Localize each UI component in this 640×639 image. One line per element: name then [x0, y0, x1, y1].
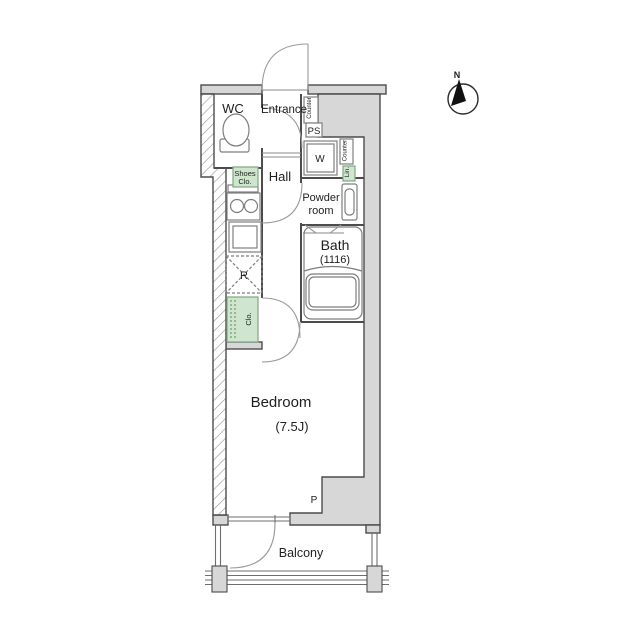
toilet-bowl	[223, 114, 249, 146]
bedroom-label: Bedroom	[251, 394, 312, 411]
pipe-shaft-label: PS	[308, 126, 321, 137]
balcony-label: Balcony	[279, 546, 324, 560]
bedroom-size-label: (7.5J)	[275, 419, 308, 434]
closet-label: Clo.	[244, 312, 253, 325]
washer-label: W	[315, 154, 325, 165]
powder-room-label-line1: Powder	[302, 192, 340, 204]
floorplan-svg: N WC Entrance Hall Shoes Clo. Counter PS…	[0, 0, 640, 639]
linen-label: Lin.	[344, 167, 351, 178]
wc-label: WC	[222, 101, 244, 116]
bathtub-inner	[309, 277, 356, 307]
top-wall-right	[308, 85, 386, 94]
refrigerator-label: R	[240, 270, 248, 282]
bottom-wall-left	[213, 515, 228, 525]
compass-north-label: N	[454, 70, 461, 80]
kitchen-sink-inner	[233, 226, 257, 248]
right-wall-foot	[366, 525, 380, 533]
bedroom-top-wall	[226, 342, 262, 349]
stove-burner-right	[245, 200, 258, 213]
stove-burner-left	[231, 200, 244, 213]
bath-label: Bath	[321, 237, 350, 253]
closet-door-arc-upper	[262, 298, 300, 338]
left-outer-wall	[201, 94, 226, 515]
entrance-label: Entrance	[261, 104, 307, 116]
bath-size-label: (1116)	[320, 254, 350, 266]
balcony-post-right	[367, 566, 382, 592]
floorplan-page: N WC Entrance Hall Shoes Clo. Counter PS…	[0, 0, 640, 639]
north-arrow-icon	[451, 79, 466, 106]
bath-door-line2	[330, 225, 341, 233]
pipe-label: P	[311, 495, 318, 506]
bath-curve	[304, 267, 362, 272]
compass: N	[448, 70, 478, 114]
shoes-closet-label-line2: Clo.	[238, 177, 251, 186]
closet-door-arc-lower	[262, 322, 300, 362]
counter-mid-label: Counter	[343, 140, 349, 161]
hall-label: Hall	[269, 169, 292, 184]
vanity-sink	[345, 189, 354, 215]
hall-door-arc	[262, 183, 302, 223]
top-wall-left	[201, 85, 262, 94]
entrance-door-arc	[262, 44, 308, 90]
balcony-post-left	[212, 566, 227, 592]
counter-top-label: Counter	[307, 97, 313, 118]
balcony-door-arc	[230, 523, 275, 568]
closet-box	[227, 297, 258, 342]
powder-room-label-line2: room	[308, 205, 333, 217]
